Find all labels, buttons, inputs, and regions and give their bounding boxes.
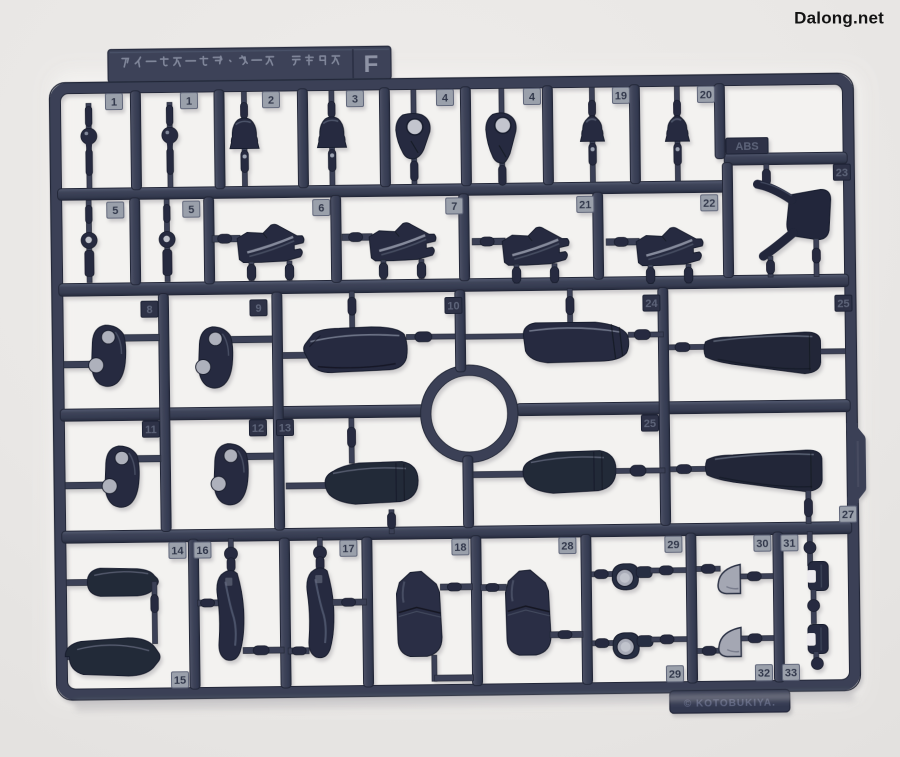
svg-text:Dalong.net: Dalong.net (794, 9, 884, 28)
svg-text:16: 16 (196, 545, 208, 557)
svg-text:1: 1 (186, 95, 192, 107)
svg-text:10: 10 (447, 300, 459, 312)
svg-text:11: 11 (145, 424, 157, 436)
svg-text:19: 19 (615, 90, 627, 102)
svg-text:5: 5 (188, 204, 194, 216)
svg-text:17: 17 (342, 543, 354, 555)
svg-text:5: 5 (112, 205, 118, 217)
svg-text:21: 21 (579, 199, 591, 211)
svg-text:32: 32 (758, 667, 770, 679)
svg-text:24: 24 (645, 298, 658, 310)
svg-text:25: 25 (644, 418, 656, 430)
svg-text:20: 20 (700, 89, 712, 101)
svg-text:F: F (364, 51, 379, 78)
svg-text:ABS: ABS (735, 141, 758, 153)
svg-text:14: 14 (171, 545, 184, 557)
svg-text:9: 9 (255, 303, 261, 315)
svg-text:1: 1 (111, 96, 117, 108)
svg-text:7: 7 (451, 201, 457, 213)
svg-text:15: 15 (174, 675, 186, 687)
svg-text:23: 23 (836, 167, 848, 179)
svg-text:4: 4 (442, 92, 449, 104)
svg-text:18: 18 (454, 542, 466, 554)
svg-text:6: 6 (318, 202, 324, 214)
svg-text:22: 22 (703, 198, 715, 210)
svg-text:13: 13 (279, 422, 291, 434)
svg-text:29: 29 (669, 668, 681, 680)
svg-text:29: 29 (667, 539, 679, 551)
svg-text:25: 25 (837, 298, 849, 310)
svg-text:8: 8 (146, 304, 152, 316)
svg-text:2: 2 (268, 94, 274, 106)
svg-text:27: 27 (842, 509, 854, 521)
svg-text:33: 33 (785, 667, 797, 679)
svg-text:4: 4 (529, 91, 536, 103)
svg-text:28: 28 (561, 540, 573, 552)
svg-text:3: 3 (352, 93, 358, 105)
svg-text:30: 30 (756, 538, 768, 550)
svg-text:12: 12 (252, 423, 264, 435)
svg-text:31: 31 (783, 538, 795, 550)
